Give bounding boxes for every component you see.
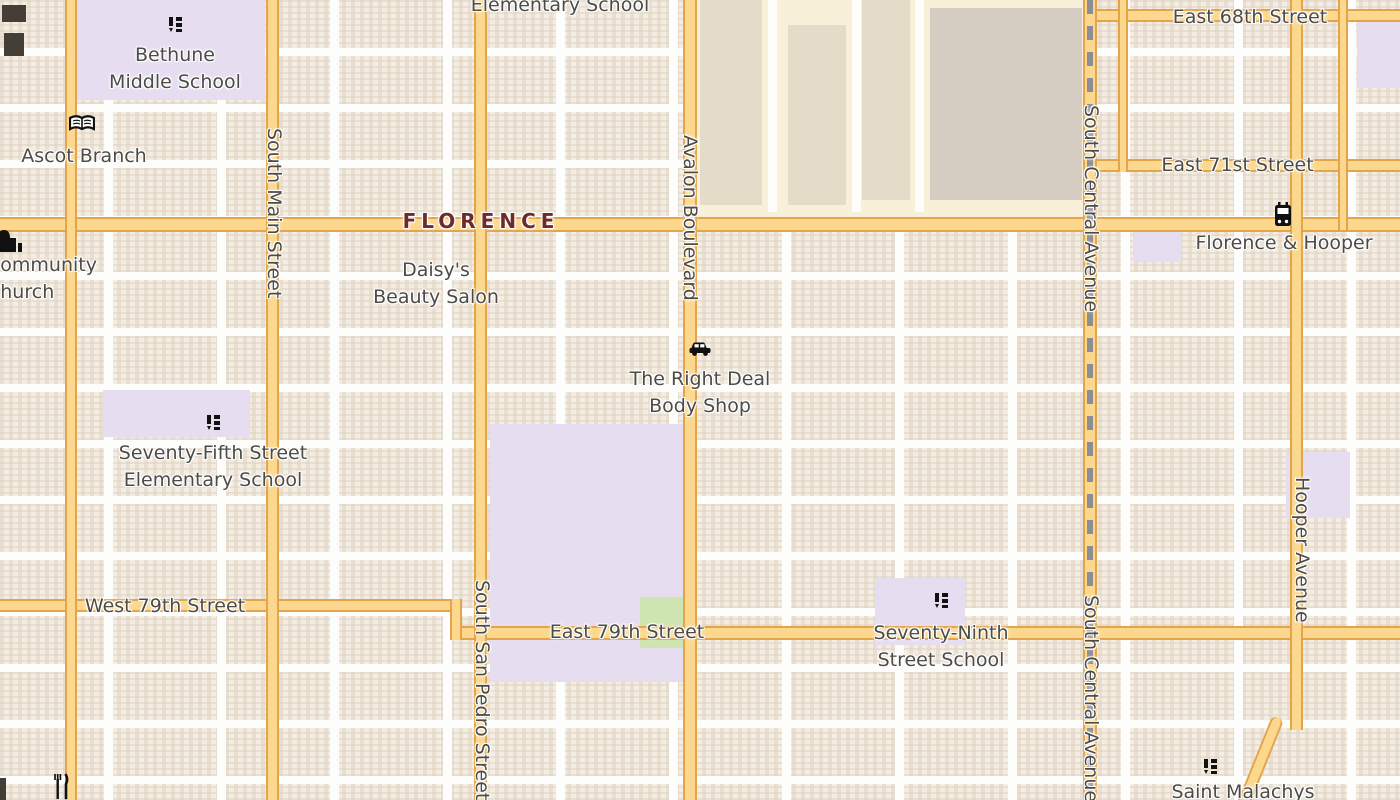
dark-building	[0, 778, 6, 800]
road-79th-connector	[450, 599, 462, 640]
bus-icon	[1272, 201, 1294, 233]
school-icon	[203, 413, 223, 437]
alley	[768, 0, 777, 212]
poi-label-florence-and-hooper: Florence & Hooper	[1164, 230, 1400, 257]
street-label-east-68th: East 68th Street	[1130, 4, 1370, 31]
street-label-east-71st: East 71st Street	[1110, 152, 1365, 179]
street-label-avalon-boulevard: Avalon Boulevard	[676, 108, 703, 328]
poi-label-community-church: Community Church	[0, 252, 187, 306]
building-block	[700, 0, 762, 205]
poi-label-ascot-branch: Ascot Branch	[4, 143, 164, 170]
poi-label-daisys-beauty-salon: Daisy's Beauty Salon	[336, 257, 536, 311]
building-block	[788, 25, 846, 205]
alley	[915, 0, 924, 212]
poi-label-seventy-fifth-school: Seventy-Fifth Street Elementary School	[88, 440, 338, 494]
alley	[852, 0, 861, 212]
poi-label-saint-malachys: Saint Malachys	[1143, 779, 1343, 800]
street-label-east-79th: East 79th Street	[527, 619, 727, 646]
street-label-south-main: South Main Street	[260, 103, 287, 323]
book-icon	[69, 114, 95, 138]
school-icon	[931, 591, 951, 615]
road-minor-vertical	[1338, 0, 1348, 230]
school-area-topright	[1357, 22, 1400, 88]
map-canvas[interactable]: Elementary School East 68th Street Bethu…	[0, 0, 1400, 800]
dark-building	[4, 33, 24, 56]
road-minor-vertical	[1118, 0, 1128, 172]
poi-label-seventy-ninth-school: Seventy-Ninth Street School	[841, 620, 1041, 674]
fork-knife-icon	[52, 773, 70, 800]
poi-label-bethune-middle-school: Bethune Middle School	[75, 42, 275, 96]
street-label-south-san-pedro: South San Pedro Street	[468, 545, 495, 800]
school-icon	[1200, 757, 1220, 781]
building-block-large	[930, 8, 1082, 200]
street-label-south-central-top: South Central Avenue	[1077, 85, 1104, 333]
poi-label-elementary-partial: Elementary School	[460, 0, 660, 19]
dark-building	[2, 5, 26, 22]
poi-label-right-deal-body-shop: The Right Deal Body Shop	[600, 366, 800, 420]
street-label-hooper-avenue: Hooper Avenue	[1288, 455, 1315, 645]
school-area-75th	[103, 390, 250, 437]
car-icon	[688, 340, 712, 361]
place-label-florence: FLORENCE	[381, 208, 581, 235]
school-icon	[165, 15, 185, 39]
street-label-south-central-bottom: South Central Avenue	[1077, 575, 1104, 800]
street-label-west-79th: West 79th Street	[55, 593, 275, 620]
building-block	[862, 0, 910, 200]
